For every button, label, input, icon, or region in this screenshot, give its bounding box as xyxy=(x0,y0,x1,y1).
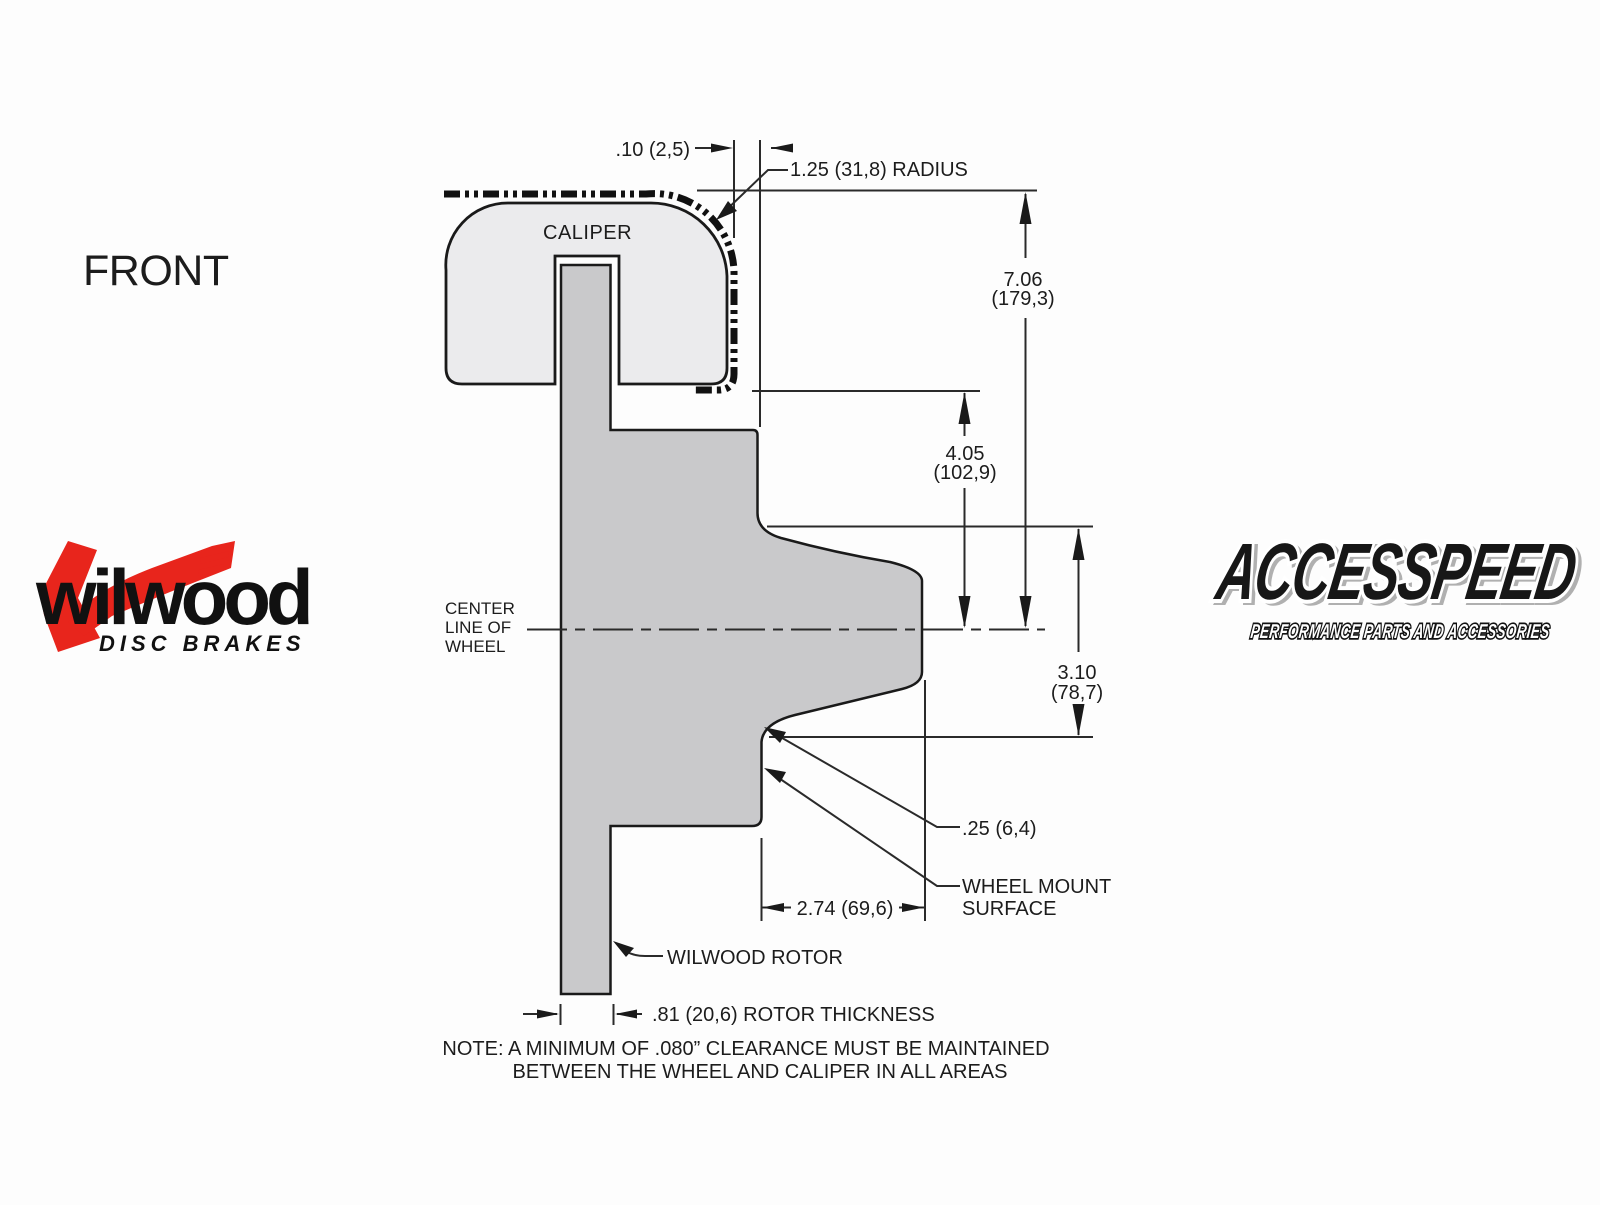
svg-text:1.25 (31,8) RADIUS: 1.25 (31,8) RADIUS xyxy=(790,159,968,181)
svg-text:wilwood: wilwood xyxy=(35,553,309,641)
svg-text:WILWOOD ROTOR: WILWOOD ROTOR xyxy=(667,947,843,969)
svg-text:(179,3): (179,3) xyxy=(991,288,1054,310)
svg-text:PERFORMANCE PARTS AND ACCESSOR: PERFORMANCE PARTS AND ACCESSORIES xyxy=(1249,619,1551,642)
svg-text:ACCESSPEED: ACCESSPEED xyxy=(1210,527,1582,617)
svg-text:WHEEL MOUNT: WHEEL MOUNT xyxy=(962,876,1111,898)
svg-text:CALIPER: CALIPER xyxy=(543,222,632,244)
svg-text:BETWEEN THE WHEEL AND CALIPER: BETWEEN THE WHEEL AND CALIPER IN ALL ARE… xyxy=(513,1061,1008,1083)
svg-text:(78,7): (78,7) xyxy=(1051,682,1103,704)
svg-text:2.74 (69,6): 2.74 (69,6) xyxy=(797,898,894,920)
svg-text:DISC BRAKES: DISC BRAKES xyxy=(99,631,306,656)
svg-text:NOTE: A MINIMUM OF .080” CLEAR: NOTE: A MINIMUM OF .080” CLEARANCE MUST … xyxy=(442,1038,1049,1060)
svg-text:(102,9): (102,9) xyxy=(933,462,996,484)
svg-text:.10 (2,5): .10 (2,5) xyxy=(616,139,690,161)
svg-text:WHEEL: WHEEL xyxy=(445,637,505,656)
svg-text:FRONT: FRONT xyxy=(83,247,229,295)
svg-text:SURFACE: SURFACE xyxy=(962,898,1056,920)
svg-text:LINE OF: LINE OF xyxy=(445,618,511,637)
svg-text:.25 (6,4): .25 (6,4) xyxy=(962,818,1036,840)
svg-text:3.10: 3.10 xyxy=(1058,662,1097,684)
svg-text:.81 (20,6) ROTOR THICKNESS: .81 (20,6) ROTOR THICKNESS xyxy=(652,1004,935,1026)
svg-text:CENTER: CENTER xyxy=(445,599,515,618)
